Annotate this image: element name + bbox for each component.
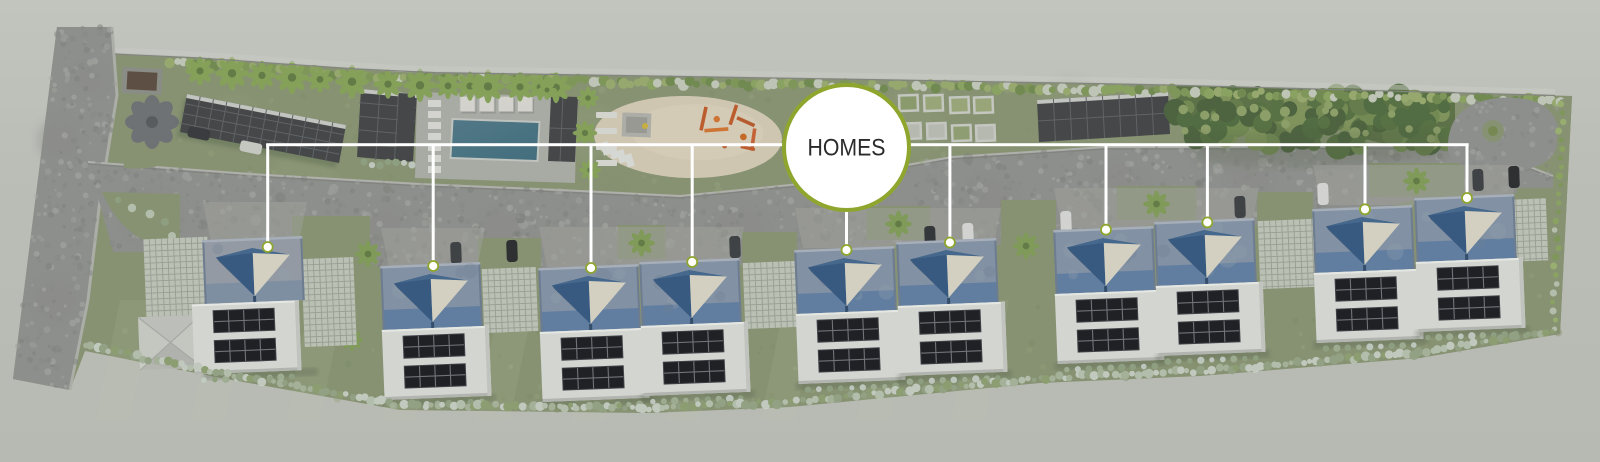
svg-text:HOMES: HOMES [808, 135, 886, 162]
